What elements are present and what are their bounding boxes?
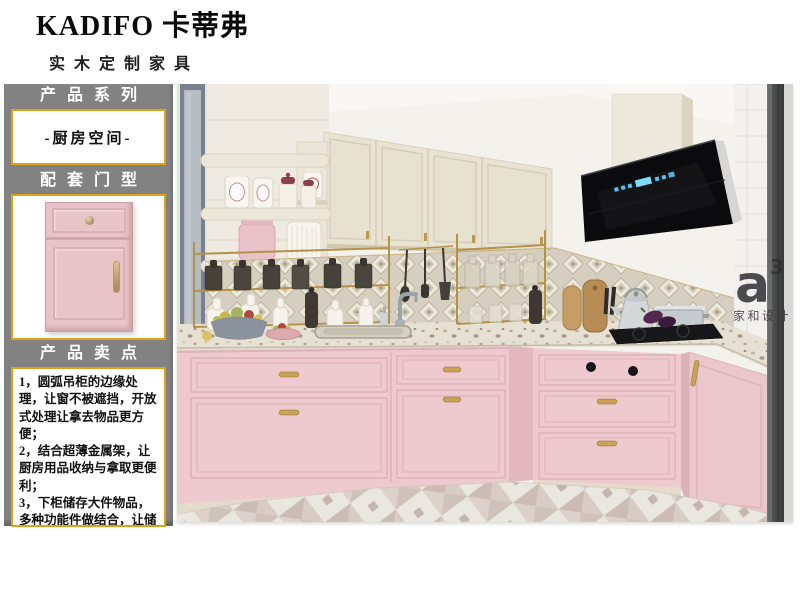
series-box: -厨房空间-	[11, 109, 166, 165]
selling-point-2: 2，结合超薄金属架，让厨房用品收纳与拿取更便利；	[19, 443, 158, 495]
door-handle	[114, 262, 119, 292]
section-title-door: 配套门型	[4, 171, 173, 191]
selling-point-3: 3，下柜储存大件物品，多种功能件做结合，让储存空间能合理利用；	[19, 495, 158, 527]
door-knob	[85, 216, 94, 225]
selling-points-box: 1，圆弧吊柜的边缘处理，让窗不被遮挡，开放式处理让拿去物品更方便； 2，结合超薄…	[11, 367, 166, 527]
kitchen-photo: a 3 家和设计	[177, 84, 793, 522]
cabinet-door-illustration	[45, 202, 133, 332]
flyer-page: KADIFO 卡蒂弗 实木定制家具 产品系列 -厨房空间- 配套门型 产品卖点 …	[0, 0, 800, 600]
watermark-caption: 家和设计	[733, 308, 791, 323]
brand-logo: KADIFO 卡蒂弗	[36, 4, 249, 44]
brand-tagline: 实木定制家具	[49, 50, 249, 74]
door-drawer-front	[46, 203, 132, 240]
base-cabinets-left	[177, 346, 533, 504]
sink	[315, 326, 411, 338]
series-value: -厨房空间-	[45, 127, 133, 148]
door-box	[11, 194, 166, 340]
door-lower-front	[46, 240, 132, 328]
section-title-series: 产品系列	[4, 86, 173, 106]
brand-header: KADIFO 卡蒂弗 实木定制家具	[36, 4, 249, 74]
pepper-grinder	[305, 287, 318, 328]
fridge-column	[767, 84, 793, 522]
section-title-selling: 产品卖点	[4, 344, 173, 364]
watermark-mark: a	[735, 255, 770, 315]
selling-point-1: 1，圆弧吊柜的边缘处理，让窗不被遮挡，开放式处理让拿去物品更方便；	[19, 374, 158, 443]
kitchen-scene: a 3 家和设计	[177, 84, 793, 522]
sidebar: 产品系列 -厨房空间- 配套门型 产品卖点 1，圆弧吊柜的边缘处理，让窗不被遮挡…	[4, 84, 173, 526]
watermark-sup: 3	[770, 255, 784, 279]
